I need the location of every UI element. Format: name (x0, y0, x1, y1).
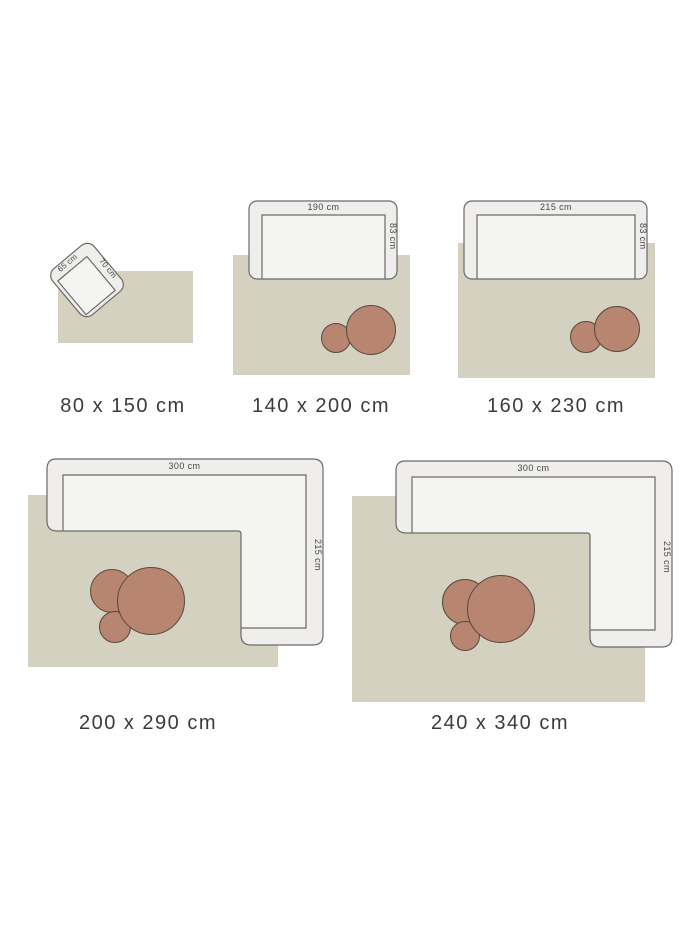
corner-sofa-width-dimension: 300 cm (412, 463, 655, 474)
sofa-depth-dimension: 83 cm (385, 216, 398, 256)
rug-size-label-160x230: 160 x 230 cm (456, 394, 656, 418)
corner-sofa-shape (395, 460, 673, 648)
corner-sofa-depth-dimension: 215 cm (657, 535, 672, 579)
coffee-table-large (346, 305, 396, 355)
coffee-table-large (117, 567, 185, 635)
corner-sofa: 300 cm 215 cm (395, 460, 673, 648)
sofa-seat (262, 215, 385, 279)
sofa-215: 215 cm 83 cm (463, 200, 648, 280)
coffee-table-large (594, 306, 640, 352)
sofa-width-dimension: 215 cm (477, 202, 635, 213)
corner-sofa-width-dimension: 300 cm (63, 461, 306, 472)
coffee-table-large (467, 575, 535, 643)
rug-size-label-200x290: 200 x 290 cm (48, 711, 248, 735)
sofa-depth-dimension: 83 cm (635, 216, 648, 256)
rug-size-label-240x340: 240 x 340 cm (400, 711, 600, 735)
corner-sofa-shape (46, 458, 324, 646)
corner-sofa-depth-dimension: 215 cm (308, 533, 323, 577)
corner-sofa: 300 cm 215 cm (46, 458, 324, 646)
sofa-width-dimension: 190 cm (262, 202, 385, 213)
sofa-seat (477, 215, 635, 279)
rug-size-label-80x150: 80 x 150 cm (23, 394, 223, 418)
rug-size-guide-diagram: 65 cm 70 cm 80 x 150 cm 190 cm 83 cm 140… (0, 0, 700, 933)
rug-size-label-140x200: 140 x 200 cm (221, 394, 421, 418)
sofa-190: 190 cm 83 cm (248, 200, 398, 280)
